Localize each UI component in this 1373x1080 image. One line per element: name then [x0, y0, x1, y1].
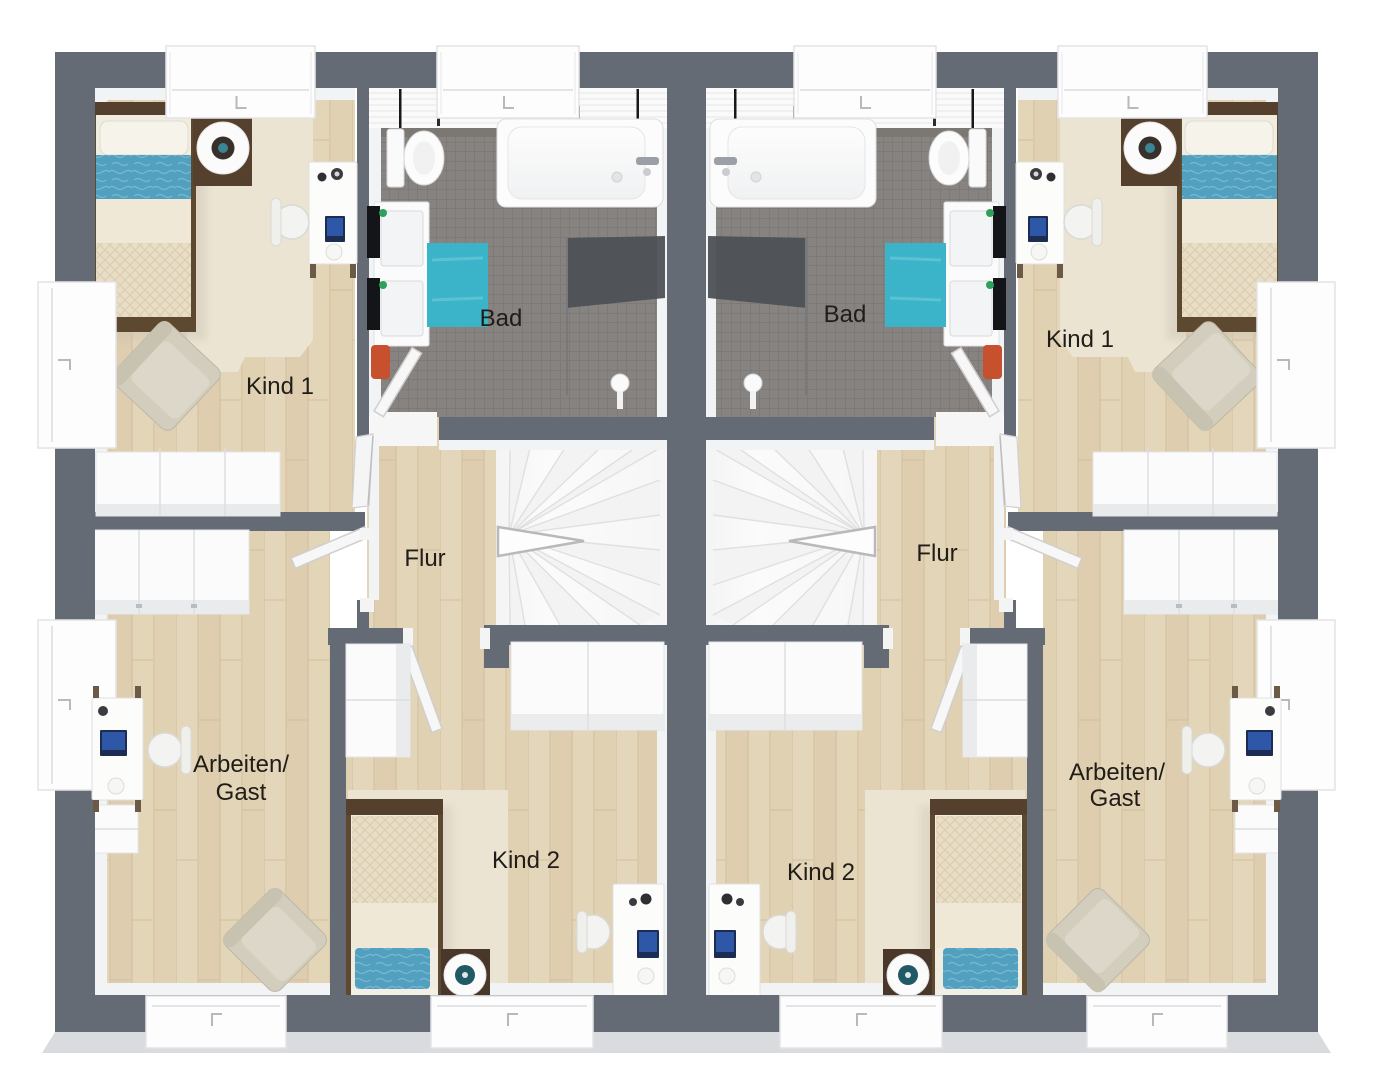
svg-text:Arbeiten/: Arbeiten/: [1069, 759, 1165, 786]
svg-text:Kind 1: Kind 1: [246, 373, 314, 400]
svg-text:Kind 2: Kind 2: [492, 847, 560, 874]
svg-text:Gast: Gast: [1090, 785, 1141, 812]
svg-text:Bad: Bad: [480, 305, 523, 332]
svg-text:Flur: Flur: [404, 545, 445, 572]
svg-text:Flur: Flur: [916, 540, 957, 567]
svg-text:Gast: Gast: [216, 779, 267, 806]
svg-text:Bad: Bad: [824, 301, 867, 328]
svg-text:Kind 1: Kind 1: [1046, 326, 1114, 353]
svg-text:Kind 2: Kind 2: [787, 859, 855, 886]
svg-text:Arbeiten/: Arbeiten/: [193, 751, 289, 778]
